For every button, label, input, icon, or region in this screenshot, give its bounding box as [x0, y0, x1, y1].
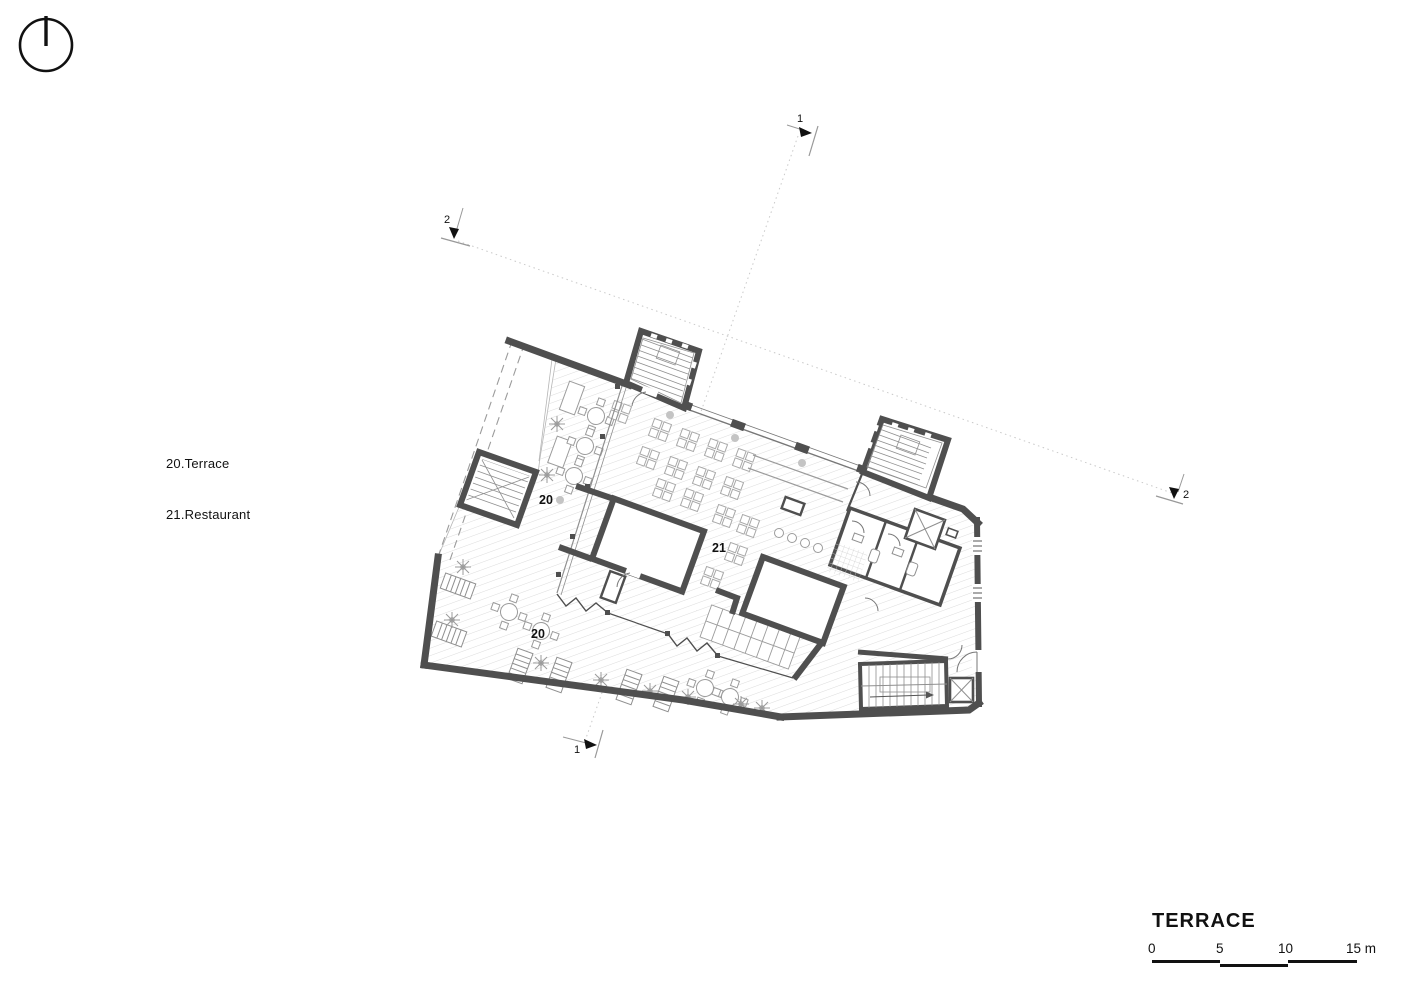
section-number-top: 1: [797, 113, 803, 125]
north-arrow-icon: [20, 16, 72, 71]
section-number-right: 2: [1183, 489, 1189, 501]
scale-tick-0: 0: [1148, 941, 1156, 956]
room-label-restaurant: 21: [712, 541, 726, 555]
legend-terrace: 20.Terrace: [166, 455, 250, 472]
section-number-bottom: 1: [574, 744, 580, 756]
scale-tick-5: 5: [1216, 941, 1224, 956]
legend: 20.Terrace 21.Restaurant: [166, 421, 250, 557]
scale-tick-15: 15 m: [1346, 941, 1376, 956]
section-marker-right: [1156, 474, 1184, 504]
legend-restaurant: 21.Restaurant: [166, 506, 250, 523]
section-marker-bottom: [563, 730, 603, 758]
room-label-terrace-upper: 20: [539, 493, 553, 507]
room-label-terrace-lower: 20: [531, 627, 545, 641]
section-number-left: 2: [444, 214, 450, 226]
service-shaft: [950, 678, 973, 702]
section-marker-top: [787, 125, 818, 156]
drawing-title: TERRACE: [1152, 910, 1256, 933]
stair-core-upper: [626, 331, 699, 408]
scale-bar-segment-2: [1220, 964, 1288, 967]
floor-plan-sheet: 20.Terrace 21.Restaurant 20 21 20 1 1 2 …: [0, 0, 1415, 1000]
scale-tick-10: 10: [1278, 941, 1293, 956]
scale-bar-segment-1: [1152, 960, 1220, 963]
scale-bar-segment-3: [1288, 960, 1357, 963]
